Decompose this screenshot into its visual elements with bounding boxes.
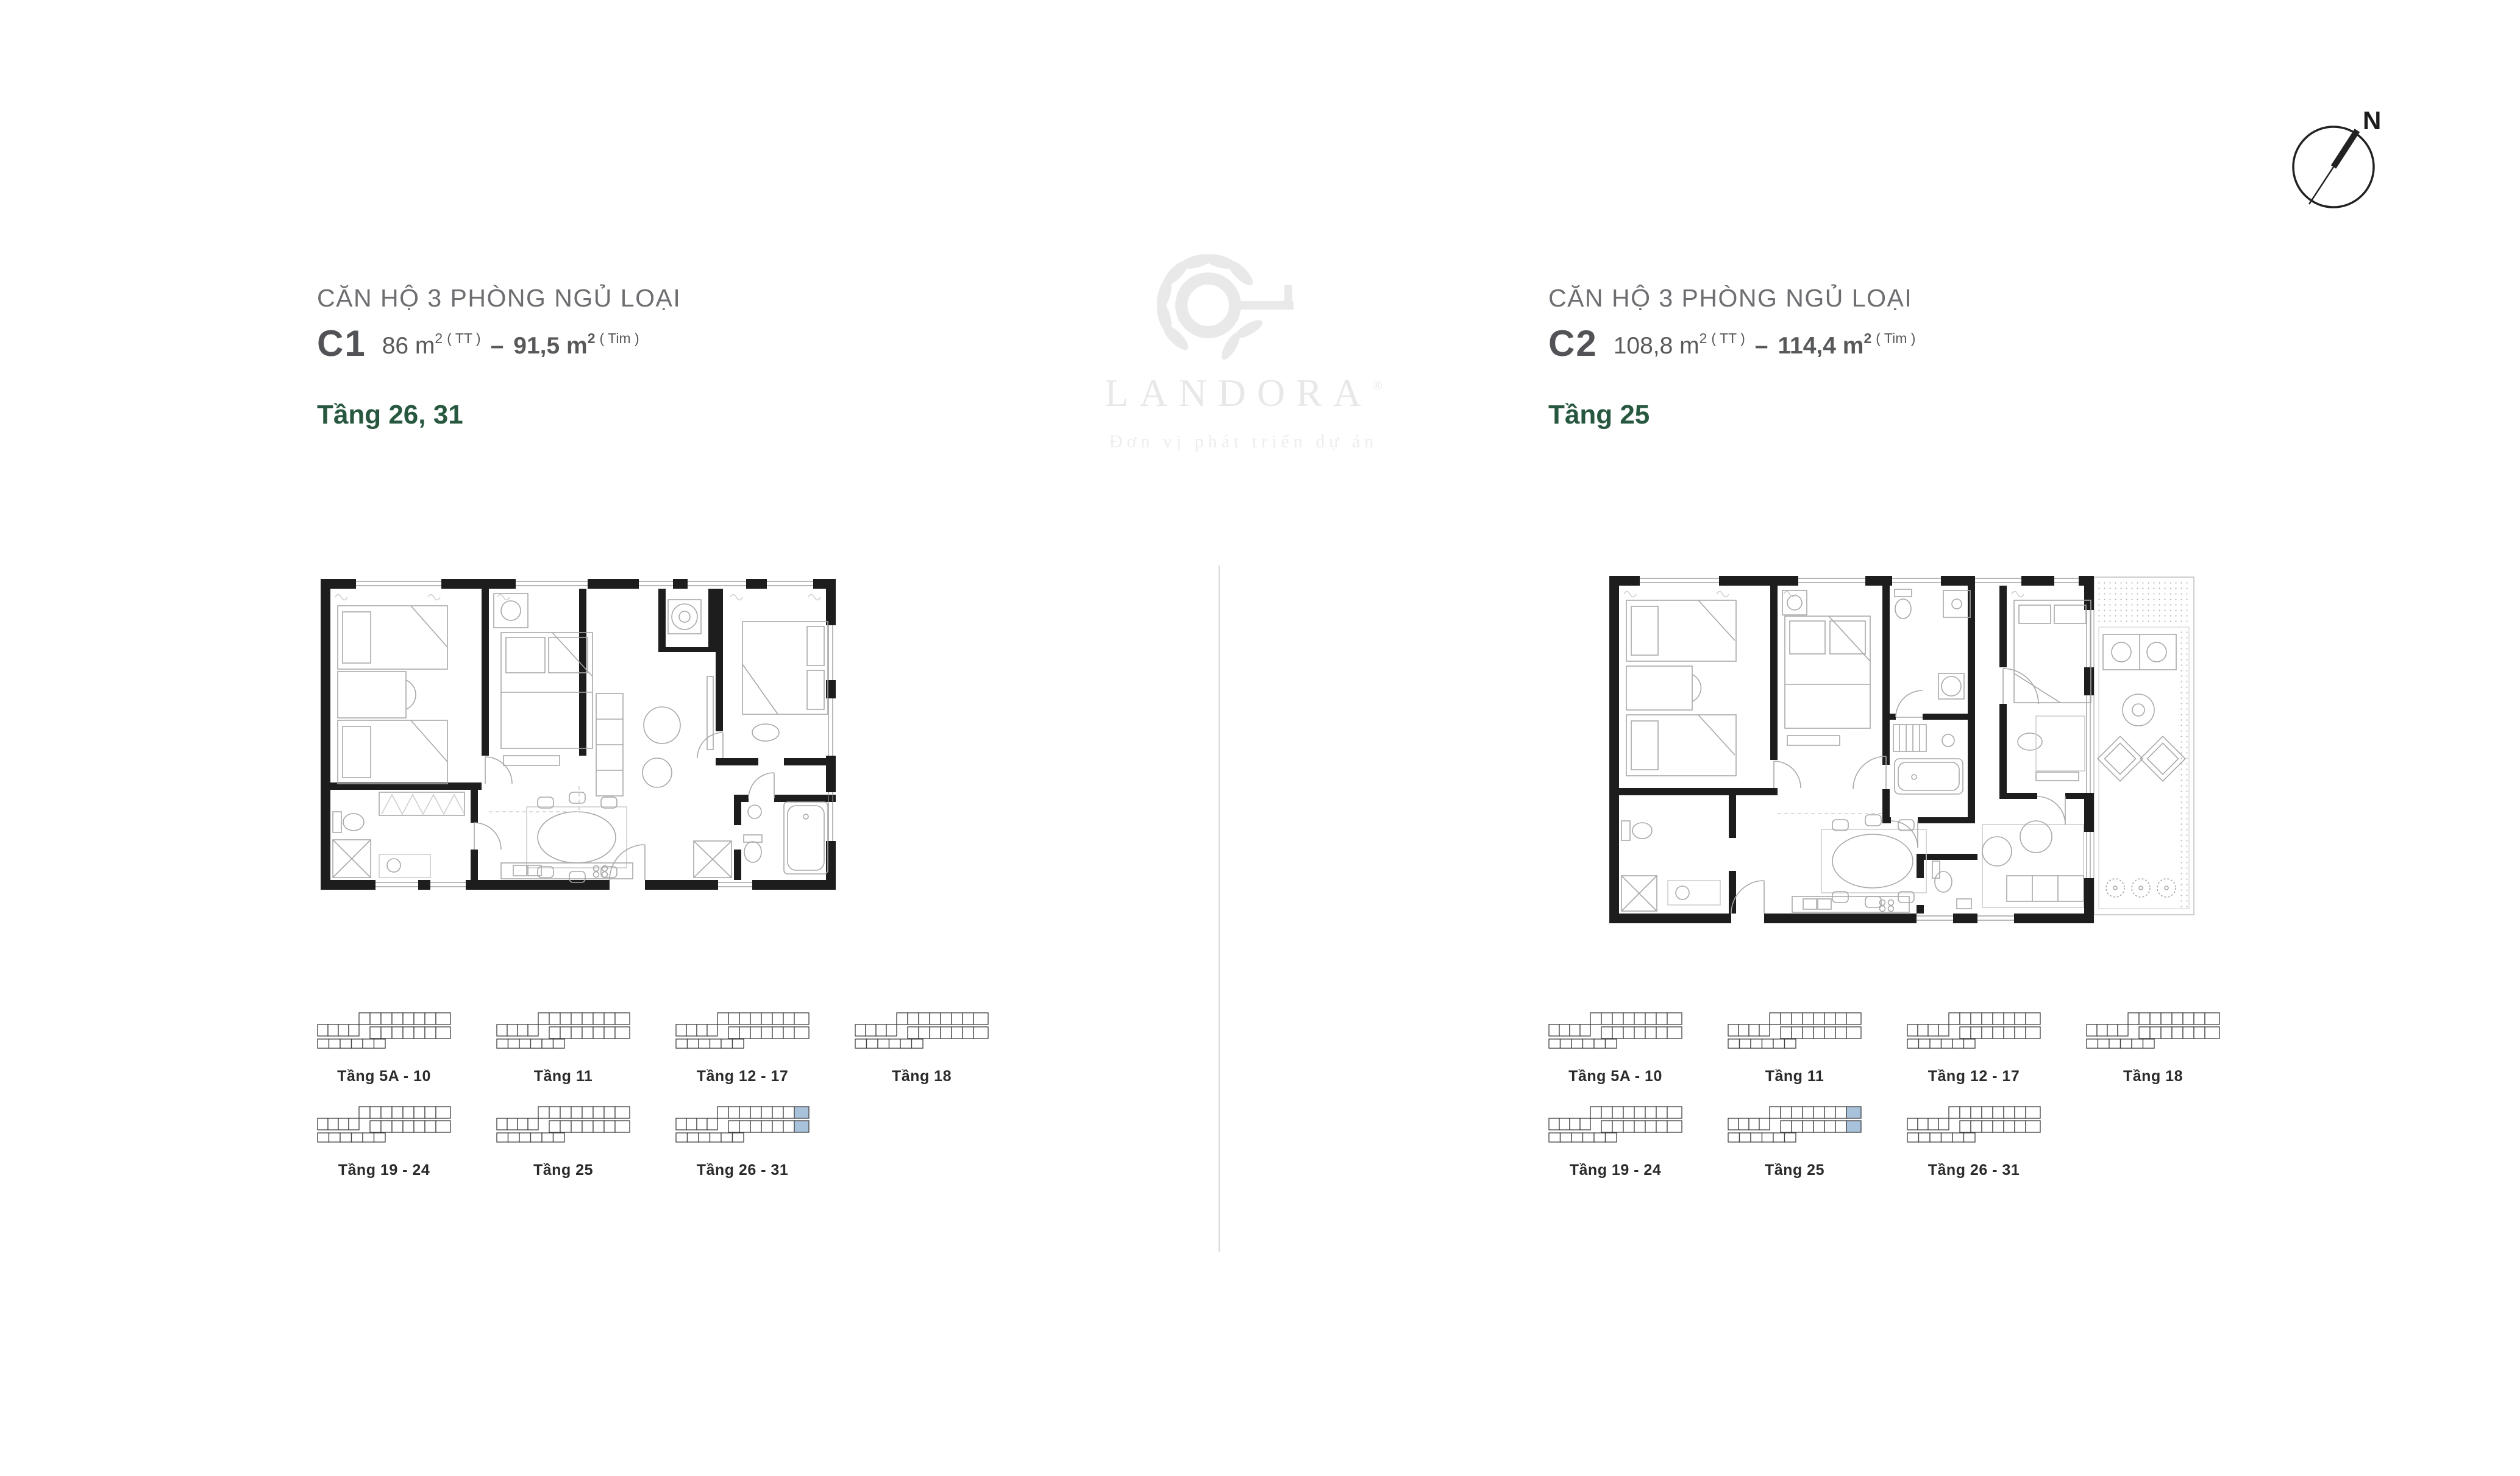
- floor-diagram-label: Tầng 26 - 31: [1884, 1162, 2063, 1179]
- compass-icon: N: [2287, 101, 2397, 218]
- area-secondary-superscript: 2( Tim ): [588, 330, 639, 346]
- floor-diagram-label: Tầng 19 - 24: [294, 1162, 474, 1179]
- walls: [321, 579, 836, 890]
- registered-mark: ®: [1372, 378, 1383, 393]
- area-secondary: 91,5 m: [513, 333, 587, 359]
- floor-plate-icon: [496, 1105, 631, 1143]
- unit-area-line: C186 m2( TT )–91,5 m2( Tim ): [317, 322, 681, 364]
- floor-diagram: Tầng 12 - 17: [1884, 1012, 2063, 1105]
- windows: [356, 581, 833, 887]
- floor-diagram: Tầng 19 - 24: [294, 1105, 474, 1199]
- floor-plan-c2: [1609, 576, 2198, 923]
- brochure-page: { "compass": { "north_label": "N" }, "wa…: [0, 0, 2520, 1476]
- area-primary-superscript: 2( TT ): [1700, 330, 1745, 346]
- floor-diagram: Tầng 26 - 31: [653, 1105, 832, 1199]
- floor-diagram: Tầng 11: [474, 1012, 653, 1105]
- landora-logo-icon: [1141, 241, 1294, 363]
- area-dash: –: [491, 333, 504, 359]
- unit-header-c2: CĂN HỘ 3 PHÒNG NGỦ LOẠI C2108,8 m2( TT )…: [1548, 284, 1915, 430]
- floor-diagram: Tầng 25: [1705, 1105, 1884, 1199]
- floor-diagram-label: Tầng 12 - 17: [653, 1068, 832, 1085]
- section-divider: [1219, 566, 1220, 1252]
- compass-north-label: N: [2363, 106, 2381, 135]
- floor-plate-icon: [675, 1012, 810, 1049]
- unit-floors: Tầng 26, 31: [317, 400, 681, 430]
- floor-diagram-grid-c2: Tầng 5A - 10Tầng 11Tầng 12 - 17Tầng 18Tầ…: [1526, 1012, 2245, 1199]
- floor-diagram: Tầng 19 - 24: [1526, 1105, 1705, 1199]
- floor-diagram-label: Tầng 19 - 24: [1526, 1162, 1705, 1179]
- area-primary: 108,8 m: [1614, 333, 1700, 359]
- floor-plate-icon: [1727, 1012, 1862, 1049]
- area-secondary: 114,4 m: [1778, 333, 1864, 359]
- unit-code: C1: [317, 323, 366, 364]
- floor-diagram-label: Tầng 18: [832, 1068, 1011, 1085]
- floor-plate-icon: [1548, 1012, 1683, 1049]
- unit-title: CĂN HỘ 3 PHÒNG NGỦ LOẠI: [1548, 284, 1915, 313]
- floor-plate-icon: [1548, 1105, 1683, 1143]
- area-secondary-superscript: 2( Tim ): [1863, 330, 1915, 346]
- floor-plate-icon: [854, 1012, 989, 1049]
- floor-diagram-label: Tầng 5A - 10: [1526, 1068, 1705, 1085]
- floor-diagram-label: Tầng 11: [474, 1068, 653, 1085]
- floor-diagram-label: Tầng 12 - 17: [1884, 1068, 2063, 1085]
- floor-plate-icon: [2085, 1012, 2221, 1049]
- area-dash: –: [1755, 333, 1768, 359]
- floor-diagram: Tầng 18: [832, 1012, 1011, 1105]
- unit-area-line: C2108,8 m2( TT )–114,4 m2( Tim ): [1548, 322, 1915, 364]
- watermark-tagline: Đơn vị phát triển dự án: [1055, 431, 1433, 452]
- floor-diagram: Tầng 11: [1705, 1012, 1884, 1105]
- floor-diagram-label: Tầng 25: [474, 1162, 653, 1179]
- floor-diagram-label: Tầng 11: [1705, 1068, 1884, 1085]
- watermark-brand: LANDORA®: [1055, 371, 1433, 416]
- area-primary-superscript: 2( TT ): [435, 330, 480, 346]
- floor-diagram-label: Tầng 5A - 10: [294, 1068, 474, 1085]
- floor-diagram: Tầng 12 - 17: [653, 1012, 832, 1105]
- floor-diagram: Tầng 5A - 10: [1526, 1012, 1705, 1105]
- floor-diagram: Tầng 26 - 31: [1884, 1105, 2063, 1199]
- unit-floors: Tầng 25: [1548, 400, 1915, 430]
- floor-diagram-label: Tầng 26 - 31: [653, 1162, 832, 1179]
- floor-plate-icon: [496, 1012, 631, 1049]
- terrace: [2094, 577, 2194, 915]
- floor-plate-icon: [316, 1105, 452, 1143]
- floor-plate-icon: [675, 1105, 810, 1143]
- area-primary: 86 m: [382, 333, 435, 359]
- unit-header-c1: CĂN HỘ 3 PHÒNG NGỦ LOẠI C186 m2( TT )–91…: [317, 284, 681, 430]
- unit-title: CĂN HỘ 3 PHÒNG NGỦ LOẠI: [317, 284, 681, 313]
- floor-plate-icon: [1906, 1012, 2041, 1049]
- furniture: [1621, 589, 2091, 914]
- floor-diagram: Tầng 18: [2063, 1012, 2243, 1105]
- floor-plate-icon: [1906, 1105, 2041, 1143]
- floor-plate-icon: [1727, 1105, 1862, 1143]
- floor-diagram-label: Tầng 25: [1705, 1162, 1884, 1179]
- floor-diagram: Tầng 5A - 10: [294, 1012, 474, 1105]
- walls: [1609, 576, 2094, 923]
- floor-diagram-label: Tầng 18: [2063, 1068, 2243, 1085]
- unit-code: C2: [1548, 323, 1598, 364]
- floor-plate-icon: [316, 1012, 452, 1049]
- floor-diagram: Tầng 25: [474, 1105, 653, 1199]
- floor-diagram-grid-c1: Tầng 5A - 10Tầng 11Tầng 12 - 17Tầng 18Tầ…: [294, 1012, 1014, 1199]
- floor-plan-c1: [321, 579, 836, 890]
